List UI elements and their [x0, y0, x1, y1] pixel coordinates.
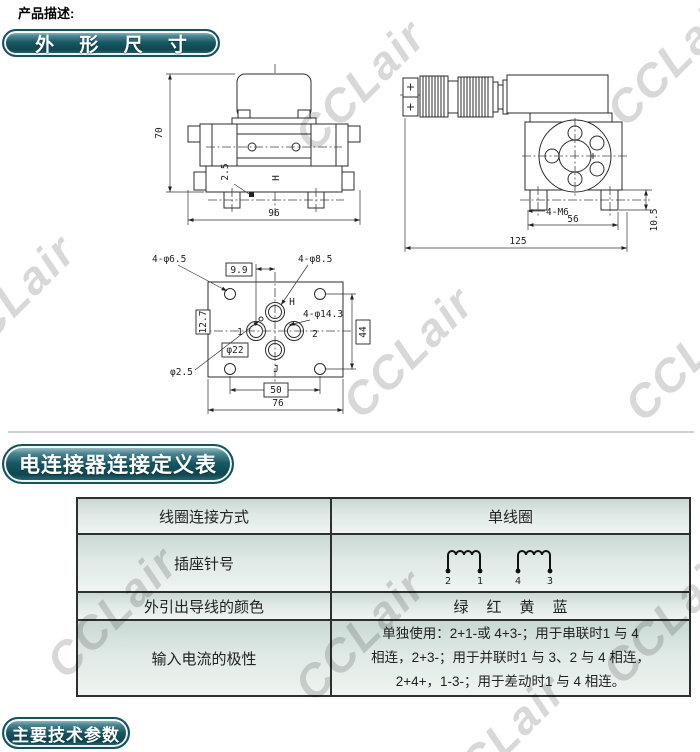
bottom-view-drawing: 4-φ6.5 4-φ8.5 9.9 4-φ14.3 12.7 44 φ22 φ2…: [140, 248, 430, 428]
table-cell-label: 输入电流的极性: [78, 621, 332, 695]
table-row: 外引出导线的颜色 绿 红 黄 蓝: [78, 591, 689, 619]
pin-number: 2: [444, 576, 450, 586]
table-cell-value: 单独使用：2+1-或 4+3-；用于串联时1 与 4 相连，2+3-；用于并联时…: [332, 621, 689, 695]
product-description-label: 产品描述:: [18, 3, 74, 22]
table-cell-label: 外引出导线的颜色: [78, 593, 332, 619]
port-label-h-front: H: [271, 175, 282, 181]
front-view-body: [188, 64, 360, 216]
watermark: CCLair: [0, 223, 87, 376]
table-row: 输入电流的极性 单独使用：2+1-或 4+3-；用于串联时1 与 4 相连，2+…: [78, 619, 689, 695]
dimension-label-70: 70: [154, 127, 165, 139]
dimension-label-4-d6-5: 4-φ6.5: [152, 254, 186, 265]
dimension-label-4-m6: 4-M6: [546, 207, 569, 218]
front-view-drawing: 70 2.5 H 96: [148, 60, 423, 252]
page: 产品描述: 外 形 尺 寸: [0, 0, 700, 752]
port-label-h: H: [289, 297, 295, 308]
banner-main-parameters: 主要技术参数: [2, 717, 130, 749]
banner-outline-dimensions: 外 形 尺 寸: [2, 29, 220, 57]
wire-color: 黄: [520, 596, 535, 617]
connector-definition-table: 线圈连接方式 单线圈 插座针号 2 1: [76, 497, 691, 697]
port-label-j: J: [273, 364, 279, 375]
section-divider: [8, 431, 694, 433]
table-cell-label: 插座针号: [78, 535, 332, 591]
wire-color: 蓝: [553, 596, 568, 617]
table-cell-value: 单线圈: [332, 499, 689, 533]
table-row: 线圈连接方式 单线圈: [78, 499, 689, 533]
dimension-label-96: 96: [268, 208, 280, 219]
dimension-label-2-5: 2.5: [220, 163, 231, 180]
port-label-2: 2: [312, 329, 318, 340]
coil-symbol: 2 1 4 3: [436, 540, 586, 586]
pin-number: 1: [476, 576, 482, 586]
side-view-drawing: 4-M6 56 10.5 125: [400, 60, 698, 260]
side-view-body: [507, 75, 650, 216]
pin-number: 4: [514, 576, 520, 586]
pin-number: 3: [546, 576, 552, 586]
watermark: CCLair: [613, 278, 700, 431]
table-cell-label: 线圈连接方式: [78, 499, 332, 533]
dimension-label-d22: φ22: [226, 345, 243, 356]
wire-color: 红: [486, 596, 501, 617]
banner-connector-definition: 电连接器连接定义表: [2, 444, 234, 484]
polarity-line: 2+4+，1-3-；用于差动时1 与 4 相连。: [396, 670, 626, 694]
table-cell-value: 绿 红 黄 蓝: [332, 593, 689, 619]
dimension-label-10-5: 10.5: [649, 209, 660, 232]
polarity-line: 相连，2+3-；用于并联时1 与 3、2 与 4 相连，: [371, 646, 650, 670]
table-row: 插座针号 2 1 4 3: [78, 533, 689, 591]
dimension-label-76: 76: [272, 398, 284, 409]
dimension-label-50: 50: [270, 385, 282, 396]
table-cell-value: 2 1 4 3: [332, 535, 689, 591]
polarity-line: 单独使用：2+1-或 4+3-；用于串联时1 与 4: [382, 622, 639, 646]
dimension-label-4-d8-5: 4-φ8.5: [298, 254, 332, 265]
dimension-label-44: 44: [358, 326, 369, 338]
port-label-1: 1: [237, 327, 243, 338]
dimension-label-d2-5: φ2.5: [170, 367, 193, 378]
dimension-label-4-d14-3: 4-φ14.3: [303, 309, 343, 320]
dimension-label-125: 125: [509, 236, 526, 247]
dimension-label-56: 56: [567, 214, 579, 225]
dimension-label-9-9: 9.9: [230, 265, 247, 276]
dimension-label-12-7: 12.7: [198, 311, 209, 334]
wire-color: 绿: [453, 596, 468, 617]
